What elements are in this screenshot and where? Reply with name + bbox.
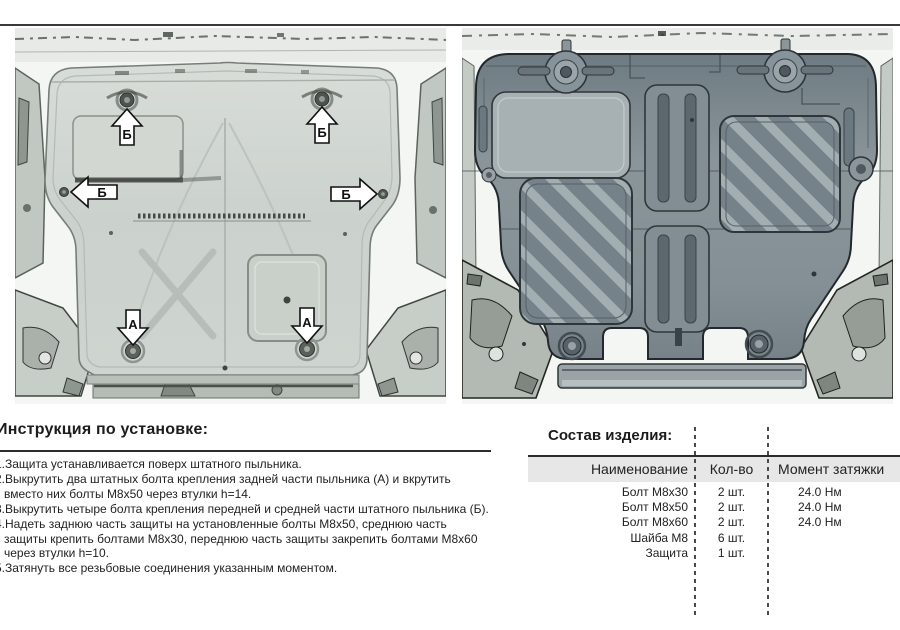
table-row: Защита 1 шт.	[528, 546, 900, 561]
instruction-sheet-page: Б Б Б Б А А	[0, 0, 900, 630]
part-name: Болт М8х50	[528, 500, 688, 514]
car-front-edge	[15, 28, 446, 62]
dust-cover	[45, 63, 400, 387]
table-row: Болт М8х50 2 шт. 24.0 Нм	[528, 499, 900, 514]
arrow-label-a: А	[128, 317, 138, 332]
parts-table-rows: Болт М8х30 2 шт. 24.0 Нм Болт М8х50 2 шт…	[528, 484, 900, 561]
plate-bolt-side-right	[849, 157, 873, 181]
instructions-list: 1.Защита устанавливается поверх штатного…	[0, 457, 540, 576]
part-torque: 24.0 Нм	[798, 485, 842, 499]
part-name: Болт М8х60	[528, 515, 688, 529]
bolt-side-left	[60, 188, 69, 197]
plate-center-tab	[675, 328, 682, 346]
instruction-step-4: 4.Надеть заднюю часть защиты на установл…	[0, 517, 540, 532]
plate-side-groove-left	[479, 106, 487, 152]
part-qty: 1 шт.	[695, 546, 768, 560]
part-torque: 24.0 Нм	[798, 515, 842, 529]
plate-center-slots-upper	[645, 85, 709, 211]
column-header-torque: Момент затяжки	[778, 461, 884, 477]
frame-rail-left	[462, 58, 476, 286]
table-row: Болт М8х60 2 шт. 24.0 Нм	[528, 515, 900, 530]
plate-bolt-front-right	[746, 331, 772, 357]
plate-hatch-panel-top-right	[720, 116, 840, 232]
part-name: Шайба М8	[528, 531, 688, 545]
part-name: Защита	[528, 546, 688, 560]
table-row: Шайба М8 6 шт.	[528, 530, 900, 545]
diagram-stock-dust-cover: Б Б Б Б А А	[15, 28, 446, 404]
arrow-label-b: Б	[341, 187, 350, 202]
plate-center-slots-lower	[645, 226, 709, 332]
part-qty: 2 шт.	[695, 515, 768, 529]
car-front-edge	[462, 28, 893, 50]
instruction-step-4-cont2: через втулки h=10.	[0, 546, 540, 561]
instruction-step-1: 1.Защита устанавливается поверх штатного…	[0, 457, 540, 472]
parts-table-header-row: Наименование Кол-во Момент затяжки	[528, 461, 900, 477]
parts-table-title: Состав изделия:	[548, 427, 672, 444]
bolt-side-right	[379, 190, 388, 199]
instruction-step-3: 3.Выкрутить четыре болта крепления перед…	[0, 502, 540, 517]
frame-rail-right	[415, 68, 446, 278]
arrow-label-a: А	[302, 315, 312, 330]
part-qty: 2 шт.	[695, 500, 768, 514]
part-torque: 24.0 Нм	[798, 500, 842, 514]
plate-bolt-front-left	[559, 333, 585, 359]
plate-bolt-side-left	[482, 168, 496, 182]
column-header-name: Наименование	[528, 461, 688, 477]
instruction-step-5: 5.Затянуть все резьбовые соединения указ…	[0, 561, 540, 576]
instruction-step-4-cont: защиты крепить болтами М8х30, переднюю ч…	[0, 532, 540, 547]
diagram-installed-plate	[462, 28, 893, 404]
top-divider-line	[0, 24, 900, 26]
frame-rail-left	[15, 68, 45, 278]
part-qty: 2 шт.	[695, 485, 768, 499]
plate-side-groove-right	[844, 108, 854, 166]
part-qty: 6 шт.	[695, 531, 768, 545]
instruction-step-2: 2.Выкрутить два штатных болта крепления …	[0, 472, 540, 487]
table-row: Болт М8х30 2 шт. 24.0 Нм	[528, 484, 900, 499]
plate-hatch-panel-bottom-left	[520, 178, 632, 324]
instructions-title: Инструкция по установке:	[0, 421, 208, 439]
instructions-underline	[0, 450, 491, 452]
column-header-qty: Кол-во	[695, 461, 768, 477]
part-name: Болт М8х30	[528, 485, 688, 499]
plate-recess	[492, 92, 630, 178]
arrow-label-b: Б	[122, 127, 131, 142]
arrow-label-b: Б	[97, 185, 106, 200]
frame-rail-right	[879, 58, 893, 286]
instruction-step-2-cont: вместо них болты М8х50 через втулки h=14…	[0, 487, 540, 502]
arrow-label-b: Б	[317, 125, 326, 140]
